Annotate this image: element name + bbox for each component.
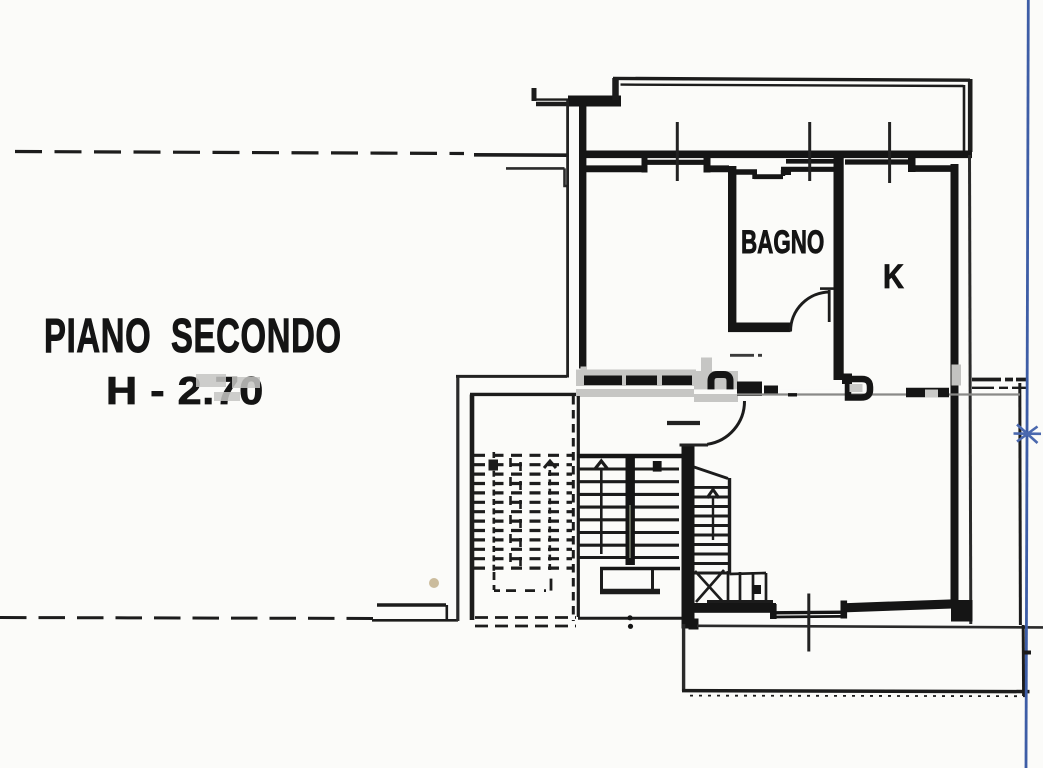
svg-text:H - 2.70: H - 2.70 [106, 369, 264, 412]
svg-text:BAGNO: BAGNO [741, 224, 824, 260]
svg-text:K: K [883, 257, 904, 296]
svg-text:PIANO SECONDO: PIANO SECONDO [44, 309, 342, 363]
